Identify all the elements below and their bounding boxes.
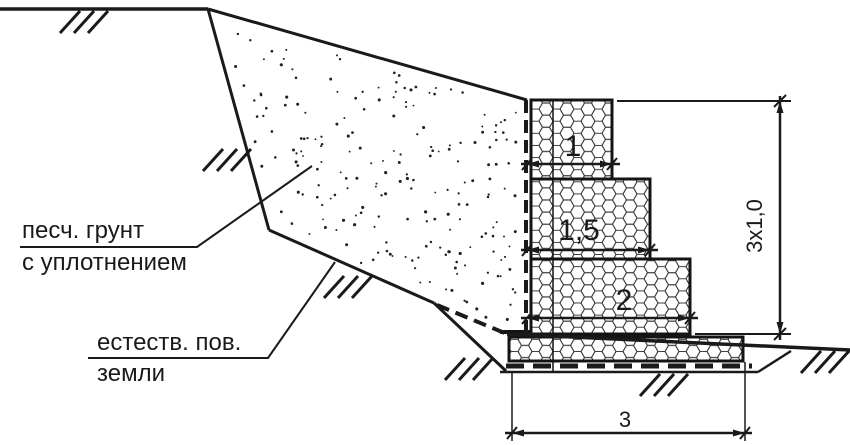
stipple-dot xyxy=(475,307,478,310)
stipple-dot xyxy=(504,256,506,258)
stipple-dot xyxy=(392,114,395,117)
excavation-left-slope-line xyxy=(434,303,506,371)
stipple-dot xyxy=(283,58,285,60)
stipple-dot xyxy=(372,258,375,261)
stipple-dot xyxy=(292,149,295,152)
stipple-dot xyxy=(506,138,508,140)
stipple-dot xyxy=(446,189,448,191)
stipple-dot xyxy=(445,254,448,256)
dim-label-base-width: 3 xyxy=(619,407,631,432)
stipple-dot xyxy=(295,160,298,163)
stipple-dot xyxy=(430,241,432,243)
stipple-dot xyxy=(503,236,505,238)
stipple-dot xyxy=(285,96,288,99)
stipple-dot xyxy=(512,288,514,290)
stipple-dot xyxy=(253,99,255,101)
stipple-dot xyxy=(234,65,237,68)
stipple-dot xyxy=(324,226,327,229)
stipple-dot xyxy=(459,252,462,255)
stipple-dot xyxy=(466,203,469,206)
stipple-dot xyxy=(425,245,428,248)
stipple-dot xyxy=(413,105,415,107)
stipple-dot xyxy=(507,162,510,165)
stipple-dot xyxy=(280,210,283,213)
stipple-dot xyxy=(378,87,380,89)
stipple-dot xyxy=(514,141,517,144)
stipple-dot xyxy=(469,246,471,248)
stipple-dot xyxy=(318,184,320,186)
stipple-dot xyxy=(411,259,414,262)
stipple-dot xyxy=(484,114,486,116)
stipple-dot xyxy=(429,92,431,94)
stipple-dot xyxy=(336,54,338,56)
stipple-dot xyxy=(351,131,354,134)
stipple-dot xyxy=(361,91,363,93)
stipple-dot xyxy=(336,91,338,93)
stipple-dot xyxy=(393,96,395,98)
stipple-dot xyxy=(496,221,498,223)
gabion-box-3 xyxy=(531,259,690,334)
stipple-dot xyxy=(508,268,511,271)
stipple-dot xyxy=(334,194,337,197)
hatch-group-mid-slope xyxy=(324,276,372,298)
stipple-dot xyxy=(316,168,319,171)
stipple-dot xyxy=(393,71,396,74)
stipple-dot xyxy=(335,229,337,231)
stipple-dot xyxy=(515,112,517,114)
stipple-dot xyxy=(492,250,494,252)
stipple-dot xyxy=(322,219,324,221)
stipple-dot xyxy=(514,230,517,233)
stipple-dot xyxy=(329,78,332,81)
stipple-dot xyxy=(260,165,263,168)
stipple-dot xyxy=(448,148,451,151)
stipple-dot xyxy=(449,229,451,231)
stipple-dot xyxy=(461,91,464,94)
stipple-dot xyxy=(345,243,348,246)
stipple-dot xyxy=(360,262,362,264)
backfill-label-line1: песч. грунт xyxy=(22,217,144,244)
stipple-dot xyxy=(438,151,440,153)
dim-label-row-3: 2 xyxy=(616,284,633,317)
stipple-dot xyxy=(355,177,358,180)
stipple-dot xyxy=(433,218,436,221)
stipple-dot xyxy=(295,152,297,154)
stipple-dot xyxy=(495,139,498,142)
stipple-dot xyxy=(495,124,497,126)
dim-label-wall-height: 3x1,0 xyxy=(742,199,767,253)
stipple-dot xyxy=(416,133,418,135)
stipple-dot xyxy=(389,253,392,256)
stipple-dot xyxy=(457,160,459,162)
stipple-dot xyxy=(370,162,372,164)
stipple-dot xyxy=(330,198,332,200)
stipple-dot xyxy=(455,261,458,264)
stipple-dot xyxy=(488,193,490,195)
stipple-dot xyxy=(447,213,450,216)
stipple-dot xyxy=(339,58,341,60)
stipple-dot xyxy=(378,215,380,217)
stipple-dot xyxy=(429,155,432,158)
stipple-dot xyxy=(487,196,490,199)
stipple-dot xyxy=(459,142,461,144)
stipple-dot xyxy=(457,192,459,194)
stipple-dot xyxy=(262,115,264,117)
stipple-dot xyxy=(481,126,483,128)
stipple-dot xyxy=(376,183,378,185)
terrain-lines xyxy=(0,9,850,372)
stipple-dot xyxy=(405,256,407,258)
stipple-dot xyxy=(473,141,476,144)
dim-base-width: 3 xyxy=(505,362,752,441)
stipple-dot xyxy=(504,119,506,121)
stipple-dot xyxy=(386,250,389,253)
stipple-dot xyxy=(297,191,300,194)
stipple-dot xyxy=(492,235,495,238)
diagram-canvas: 1 1,5 2 3x1,0 xyxy=(0,0,850,445)
stipple-dot xyxy=(459,218,461,220)
stipple-dot xyxy=(406,218,409,221)
stipple-dot xyxy=(392,255,394,257)
stipple-dot xyxy=(271,50,274,53)
stipple-dot xyxy=(300,137,303,140)
stipple-dot xyxy=(304,112,306,114)
stipple-dot xyxy=(497,275,500,278)
stipple-dot xyxy=(445,288,447,290)
stipple-dot xyxy=(375,186,377,188)
stipple-dot xyxy=(450,289,453,292)
stipple-dot xyxy=(363,108,366,111)
stipple-dot xyxy=(429,281,431,283)
stipple-dot xyxy=(316,196,319,199)
stipple-dot xyxy=(484,316,487,319)
stipple-dot xyxy=(399,153,401,155)
stipple-dot xyxy=(447,250,450,253)
stipple-dot xyxy=(321,143,324,146)
stipple-dot xyxy=(439,246,441,248)
stipple-dot xyxy=(424,210,427,213)
stipple-dot xyxy=(346,187,348,189)
stipple-dot xyxy=(349,151,351,153)
stipple-dot xyxy=(481,235,484,238)
stipple-dot xyxy=(500,259,502,261)
stipple-dot xyxy=(385,241,387,243)
stipple-dot xyxy=(504,188,506,190)
stipple-dot xyxy=(495,163,498,166)
stipple-dot xyxy=(274,156,277,159)
stipple-dot xyxy=(406,177,409,180)
stipple-dot xyxy=(417,256,419,258)
stipple-dot xyxy=(464,264,466,266)
stipple-dot xyxy=(492,226,494,228)
stipple-dot xyxy=(243,84,246,87)
stipple-dot xyxy=(449,144,451,146)
stipple-dot xyxy=(361,206,364,209)
stipple-dot xyxy=(335,123,338,126)
cut-slope-steep-line xyxy=(208,9,269,230)
stipple-dot xyxy=(373,226,375,228)
stipple-dot xyxy=(321,204,323,206)
stipple-dot xyxy=(433,93,436,96)
stipple-dot xyxy=(360,211,363,214)
stipple-dot xyxy=(431,149,434,152)
annotations: песч. грунт с уплотнением естеств. пов. … xyxy=(20,166,335,387)
hatch-group-pit-left xyxy=(445,358,493,380)
stipple-dot xyxy=(291,222,294,225)
stipple-dot xyxy=(382,160,384,162)
stipple-dot xyxy=(487,272,489,274)
stipple-dot xyxy=(343,117,345,119)
stipple-dot xyxy=(280,63,283,66)
stipple-dot xyxy=(340,171,342,173)
stipple-dot xyxy=(435,87,437,89)
stipple-dot xyxy=(434,192,436,194)
stipple-dot xyxy=(419,282,421,284)
stipple-dot xyxy=(454,267,457,270)
stipple-dot xyxy=(458,203,461,206)
stipple-dot xyxy=(488,177,491,180)
hatch-group-steep-slope xyxy=(203,149,251,171)
stipple-dot xyxy=(395,81,398,84)
stipple-dot xyxy=(377,252,379,254)
stipple-dot xyxy=(295,77,298,80)
stipple-dot xyxy=(355,215,357,217)
stipple-dot xyxy=(342,219,345,222)
stipple-dot xyxy=(414,267,416,269)
dim-label-row-1: 1 xyxy=(565,130,582,163)
stipple-dot xyxy=(345,177,348,180)
stipple-dot xyxy=(237,33,239,35)
stipple-dot xyxy=(354,97,357,100)
stipple-dot xyxy=(359,147,362,150)
natural-slope-line xyxy=(269,230,434,303)
stipple-dot xyxy=(405,101,407,103)
stipple-dot xyxy=(514,194,517,197)
stipple-dot xyxy=(465,301,468,304)
stipple-dot xyxy=(403,87,406,90)
hatch-group-right-ground xyxy=(801,351,849,373)
stipple-dot xyxy=(347,135,350,138)
stipple-dot xyxy=(384,192,387,195)
hatch-group-pit-bottom xyxy=(640,374,688,396)
stipple-dot xyxy=(506,318,509,321)
stipple-dot xyxy=(378,98,381,101)
stipple-dot xyxy=(384,171,387,174)
stipple-dot xyxy=(409,88,412,91)
excavation-right-slope-line xyxy=(758,351,791,372)
stipple-dot xyxy=(380,194,382,196)
stipple-dot xyxy=(249,39,251,41)
stipple-dot xyxy=(254,140,257,143)
stipple-dot xyxy=(481,282,484,285)
stipple-dot xyxy=(494,131,496,133)
stipple-dot xyxy=(320,145,322,147)
stipple-dot xyxy=(463,300,465,302)
stipple-dot xyxy=(450,88,452,90)
stipple-dot xyxy=(456,273,458,275)
hidden-ground-dashed-line xyxy=(437,305,507,334)
stipple-dot xyxy=(484,232,487,235)
stipple-dot xyxy=(284,104,287,107)
backfill-label-line2: с уплотнением xyxy=(22,249,187,276)
stipple-dot xyxy=(296,164,299,167)
stipple-dot xyxy=(320,161,322,163)
stipple-dot xyxy=(398,74,401,77)
stipple-dot xyxy=(415,86,418,89)
gabion-retaining-wall-diagram: 1 1,5 2 3x1,0 xyxy=(0,0,850,445)
stipple-dot xyxy=(514,291,516,293)
dim-label-row-2: 1,5 xyxy=(558,214,600,247)
stipple-dot xyxy=(481,131,484,134)
stipple-dot xyxy=(500,275,502,277)
hatch-group-top-left xyxy=(60,11,108,33)
stipple-dot xyxy=(398,161,401,164)
stipple-dot xyxy=(395,91,397,93)
stipple-dot xyxy=(500,121,502,123)
stipple-dot xyxy=(291,68,293,70)
stipple-dot xyxy=(271,130,274,133)
stipple-dot xyxy=(315,138,317,140)
stipple-dot xyxy=(296,103,299,106)
stipple-dot xyxy=(285,49,287,51)
backfill-top-line xyxy=(208,9,527,100)
stipple-dot xyxy=(260,94,263,97)
stipple-dot xyxy=(301,193,303,195)
stipple-dot xyxy=(353,223,356,226)
stipple-dot xyxy=(464,181,466,183)
natural-ground-label-line2: земли xyxy=(97,360,165,387)
stipple-dot xyxy=(471,179,474,182)
stipple-dot xyxy=(502,131,505,134)
stipple-dot xyxy=(265,107,268,110)
stipple-dot xyxy=(430,146,432,148)
stipple-dot xyxy=(422,126,425,129)
stipple-dot xyxy=(393,150,395,152)
stipple-dot xyxy=(306,137,308,139)
stipple-dot xyxy=(489,146,492,149)
stipple-dot xyxy=(399,180,402,183)
stipple-dot xyxy=(410,187,412,189)
stipple-dot xyxy=(405,106,407,108)
stipple-dot xyxy=(256,115,259,118)
gabion-wall xyxy=(500,100,743,371)
stipple-dot xyxy=(487,163,490,166)
stipple-dot xyxy=(509,245,511,247)
stipple-dot xyxy=(412,179,415,182)
stipple-dot xyxy=(263,58,265,60)
stipple-dot xyxy=(303,137,306,140)
stipple-dot xyxy=(426,220,428,222)
stipple-dot xyxy=(509,304,511,306)
natural-ground-label-line1: естеств. пов. xyxy=(97,329,241,356)
stipple-dot xyxy=(406,173,408,175)
stipple-dot xyxy=(320,136,322,138)
stipple-dot xyxy=(308,233,310,235)
stipple-dot xyxy=(302,155,304,157)
stipple-dot xyxy=(300,150,302,152)
